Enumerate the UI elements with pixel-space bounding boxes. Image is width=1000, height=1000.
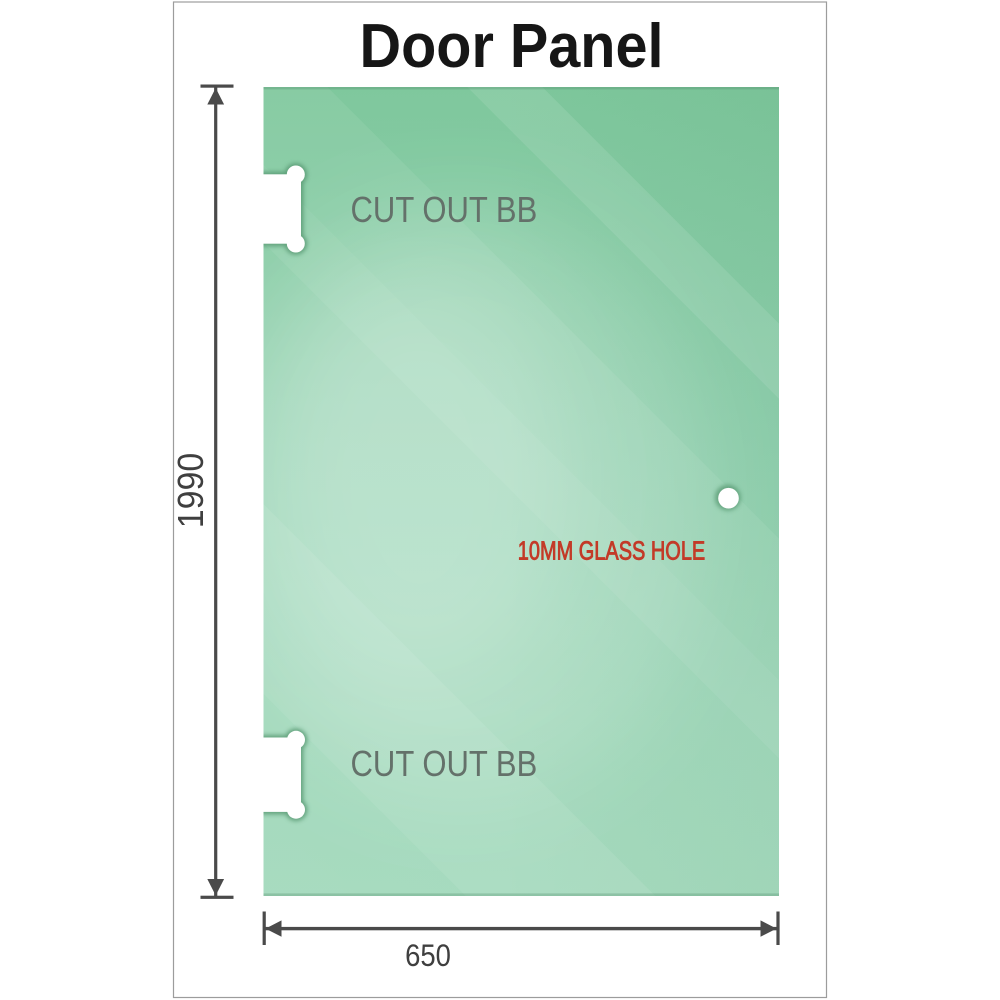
svg-text:CUT OUT BB: CUT OUT BB: [351, 190, 538, 231]
svg-text:CUT OUT BB: CUT OUT BB: [351, 744, 538, 785]
svg-text:650: 650: [405, 938, 451, 973]
svg-text:1990: 1990: [171, 453, 211, 528]
svg-text:Door Panel: Door Panel: [360, 11, 664, 80]
svg-text:10MM GLASS HOLE: 10MM GLASS HOLE: [518, 536, 705, 565]
